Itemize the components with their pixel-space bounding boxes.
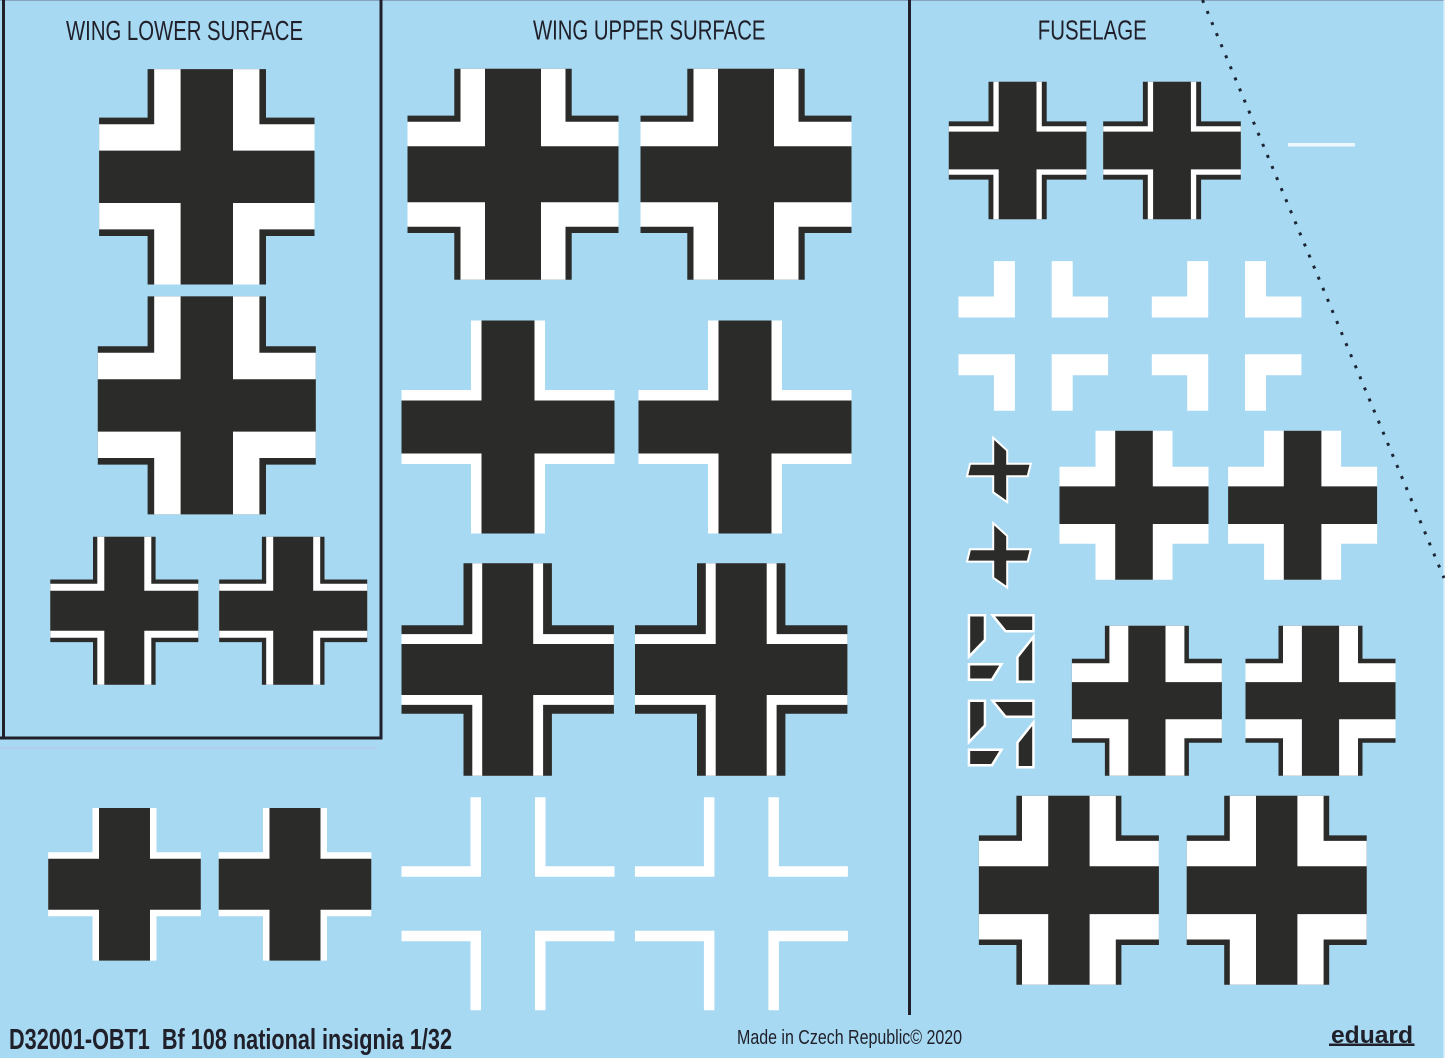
- svg-text:Made in Czech Republic© 2020: Made in Czech Republic© 2020: [737, 1027, 962, 1049]
- svg-text:WING UPPER SURFACE: WING UPPER SURFACE: [533, 15, 766, 46]
- svg-text:FUSELAGE: FUSELAGE: [1038, 15, 1147, 46]
- svg-text:WING LOWER SURFACE: WING LOWER SURFACE: [66, 15, 303, 46]
- svg-text:D32001-OBT1 Bf 108 national i: D32001-OBT1 Bf 108 national insignia 1/3…: [9, 1024, 452, 1056]
